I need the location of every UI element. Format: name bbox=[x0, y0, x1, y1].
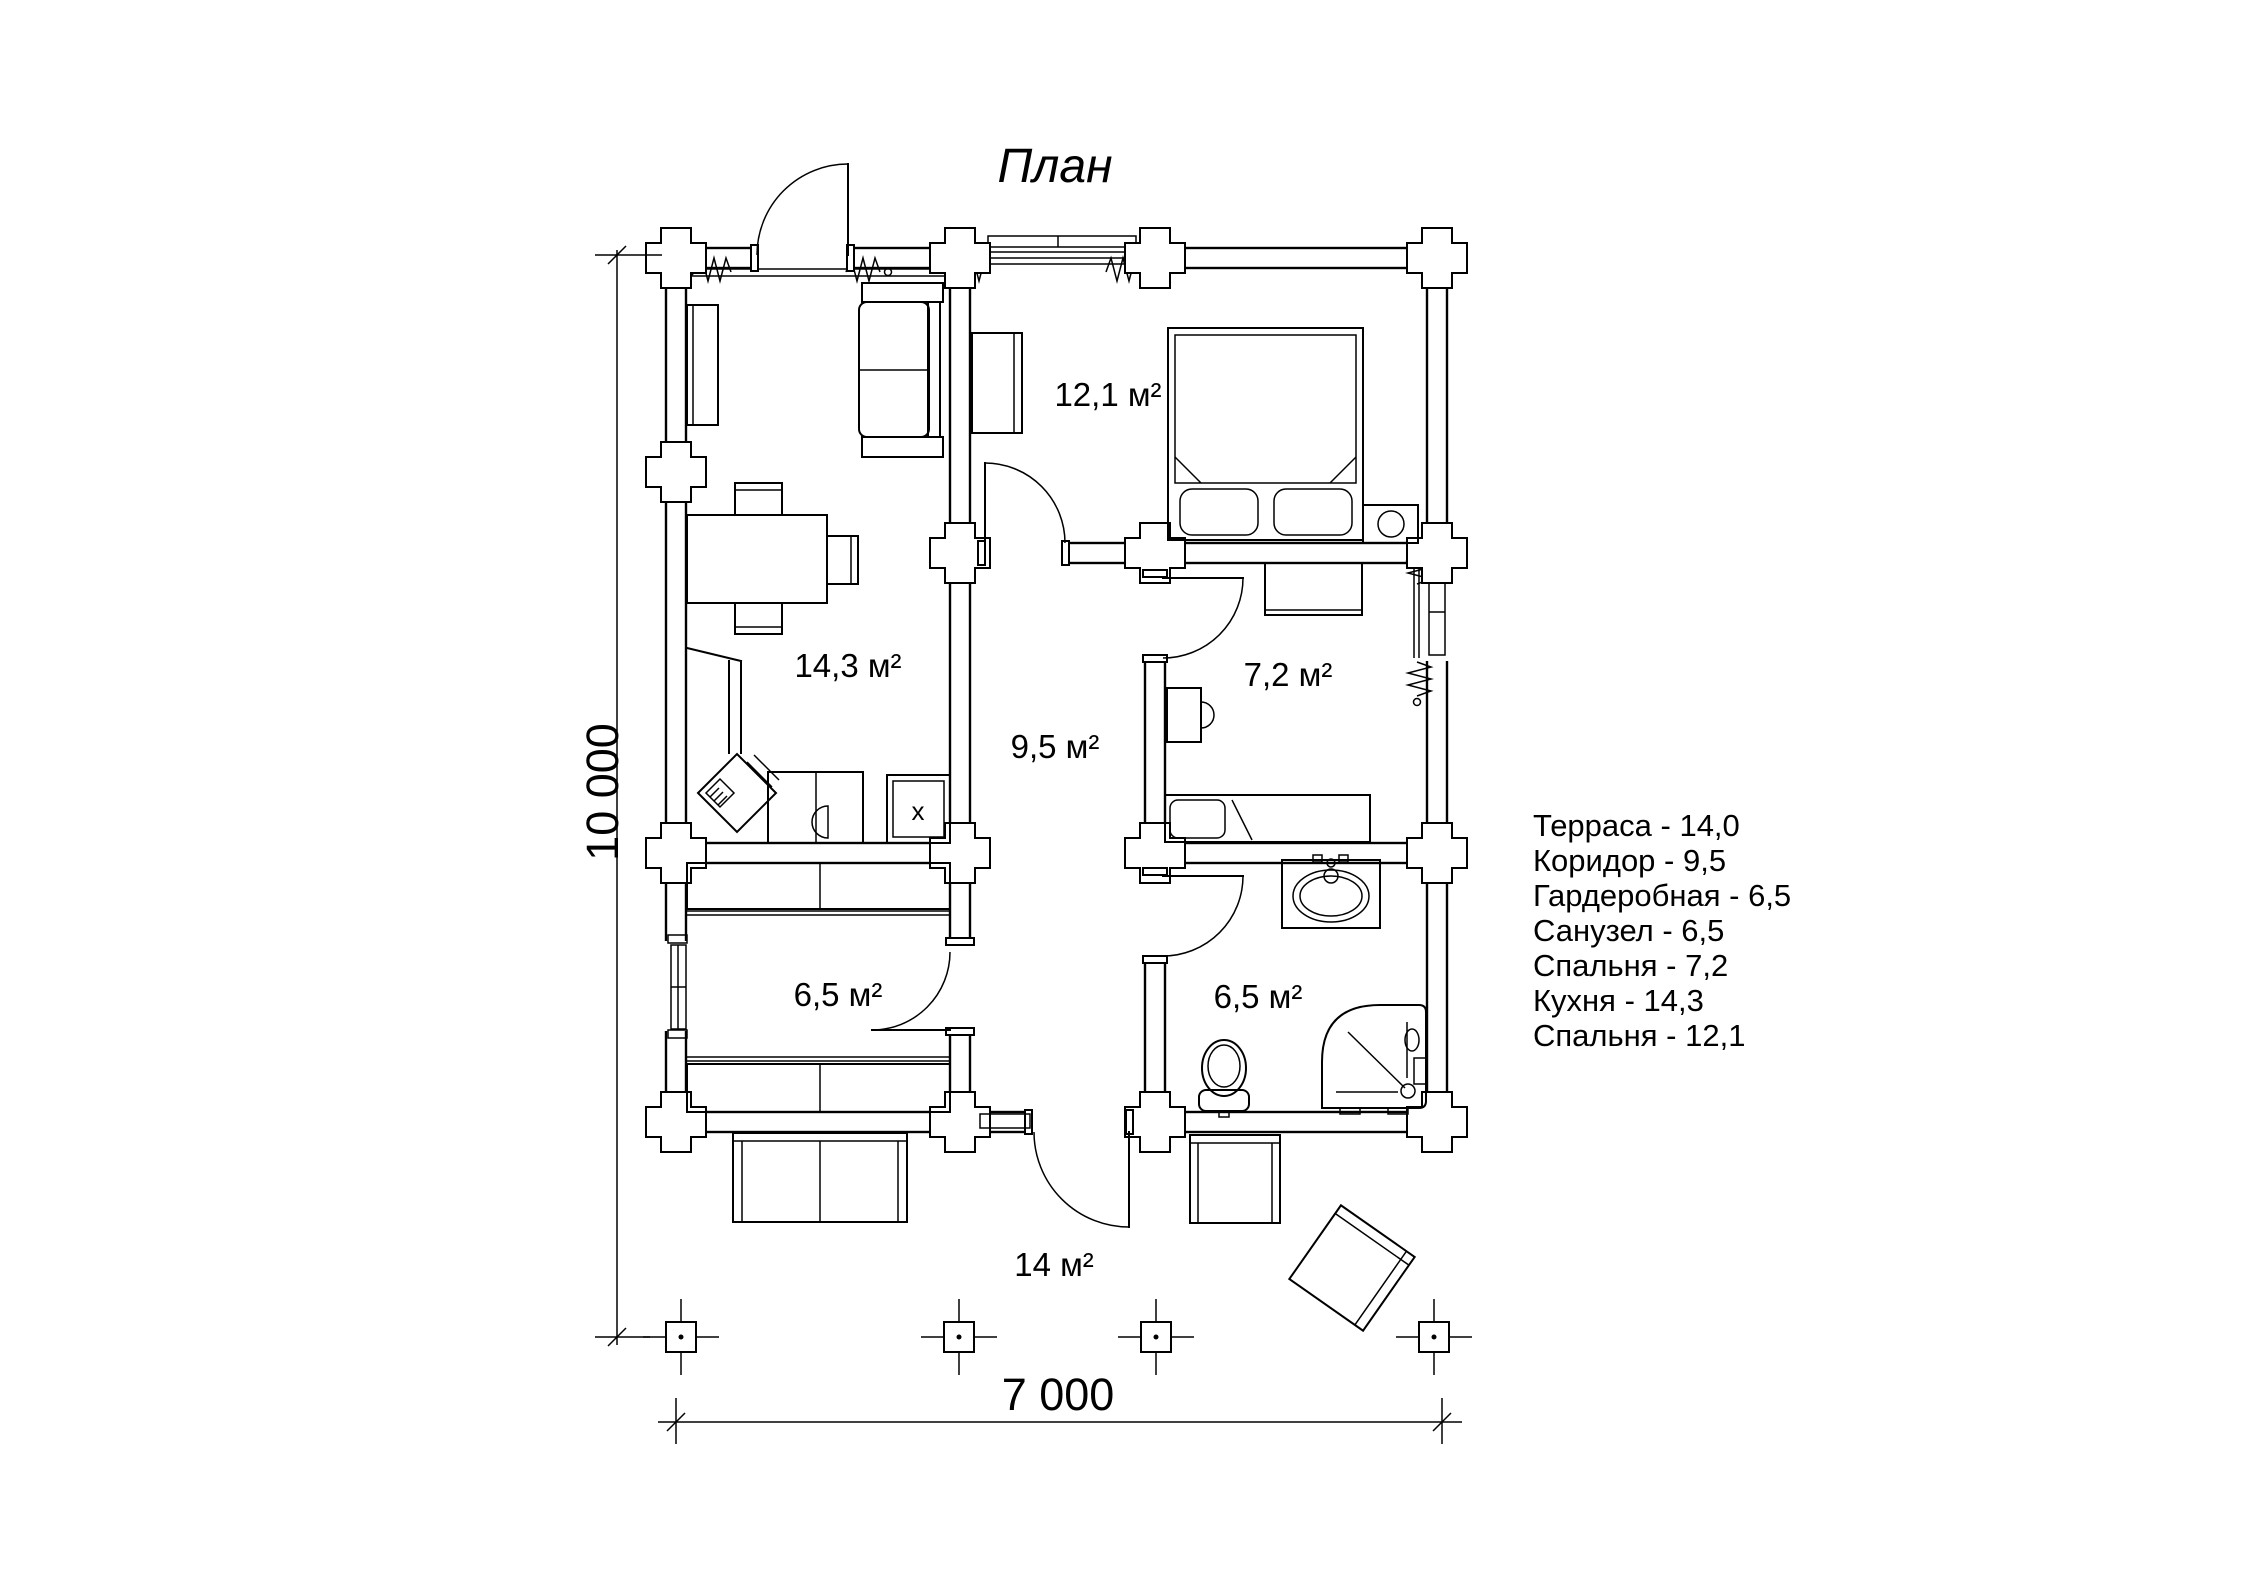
corner-fireplace bbox=[687, 648, 779, 832]
wardrobe-shelves-bottom bbox=[687, 1057, 950, 1112]
page-title: План bbox=[998, 140, 1113, 193]
legend-item: Коридор - 9,5 bbox=[1533, 843, 1726, 878]
legend-item: Гардеробная - 6,5 bbox=[1533, 878, 1791, 913]
terrace-chair-rotated bbox=[1289, 1205, 1414, 1330]
terrace-armchair bbox=[1190, 1135, 1280, 1223]
double-bed bbox=[1168, 328, 1363, 540]
legend-item: Спальня - 7,2 bbox=[1533, 948, 1728, 983]
kitchen-stove: х bbox=[887, 775, 950, 843]
corner-shower bbox=[1322, 1005, 1427, 1114]
floor-plan-page: х bbox=[0, 0, 2245, 1587]
legend-item: Санузел - 6,5 bbox=[1533, 913, 1724, 948]
wardrobe-shelves-top bbox=[687, 863, 950, 915]
dimension-vertical: 10 000 bbox=[577, 246, 662, 1346]
floor-plan-drawing: х bbox=[0, 0, 2245, 1587]
legend-item: Спальня - 12,1 bbox=[1533, 1018, 1745, 1053]
legend: Терраса - 14,0 Коридор - 9,5 Гардеробная… bbox=[1533, 808, 1791, 1053]
room-label-kitchen: 14,3 м² bbox=[794, 647, 901, 684]
bedroom-top-dresser bbox=[972, 333, 1022, 433]
dimension-vertical-label: 10 000 bbox=[577, 723, 628, 861]
room-label-corridor: 9,5 м² bbox=[1011, 728, 1100, 765]
room-label-terrace: 14 м² bbox=[1014, 1246, 1094, 1283]
legend-item: Терраса - 14,0 bbox=[1533, 808, 1740, 843]
stove-mark: х bbox=[912, 796, 925, 826]
room-label-bedroom-top: 12,1 м² bbox=[1054, 376, 1161, 413]
single-bed bbox=[1165, 795, 1370, 842]
kitchen-counter-sink bbox=[768, 772, 863, 843]
toilet bbox=[1199, 1040, 1249, 1117]
room-label-bathroom: 6,5 м² bbox=[1214, 978, 1303, 1015]
kitchen-cabinet bbox=[687, 305, 718, 425]
legend-item: Кухня - 14,3 bbox=[1533, 983, 1704, 1018]
room-label-bedroom-right: 7,2 м² bbox=[1244, 656, 1333, 693]
terrace-columns bbox=[643, 1299, 1472, 1375]
washbasin-vanity bbox=[1282, 855, 1380, 928]
dimension-horizontal-label: 7 000 bbox=[1002, 1369, 1115, 1420]
kitchen-sofa bbox=[859, 283, 943, 457]
dimension-horizontal: 7 000 bbox=[658, 1369, 1462, 1444]
terrace-bench bbox=[733, 1133, 907, 1222]
kitchen-table bbox=[687, 483, 858, 634]
bedroom-right-wardrobe bbox=[1265, 563, 1362, 615]
bedroom-right-chair bbox=[1167, 688, 1214, 742]
room-label-wardrobe: 6,5 м² bbox=[794, 976, 883, 1013]
